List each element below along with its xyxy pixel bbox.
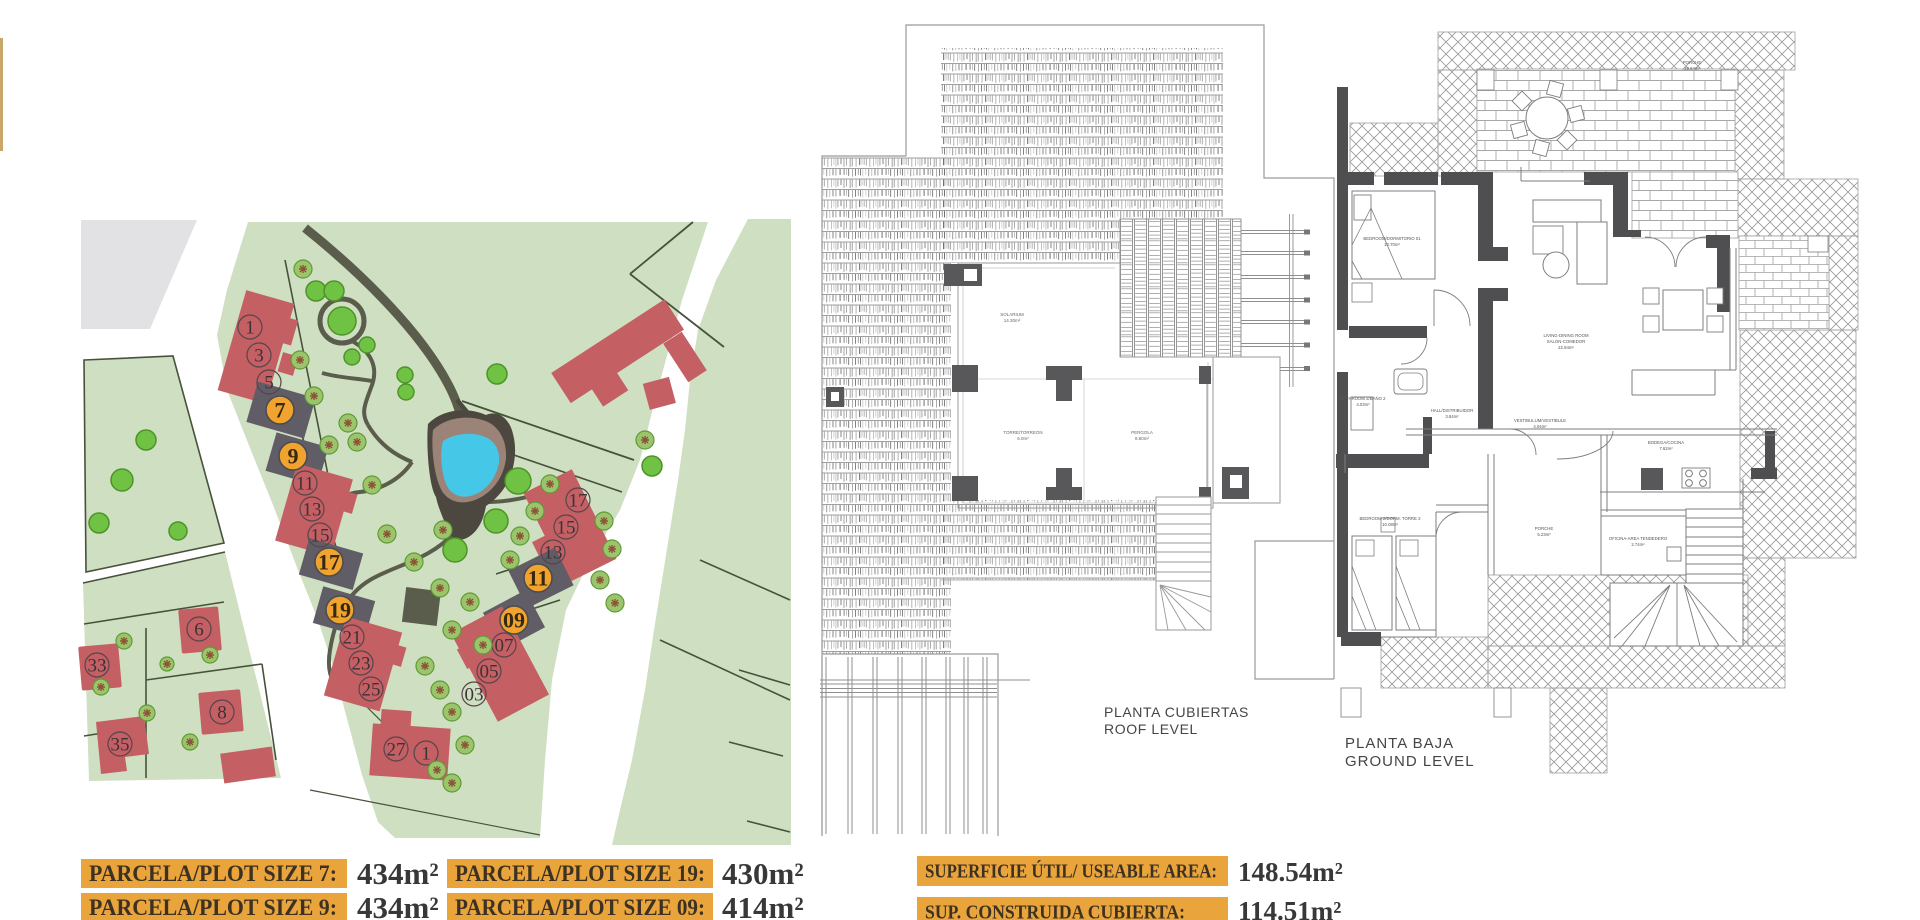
svg-text:07: 07 [495, 636, 514, 657]
svg-text:17: 17 [318, 550, 340, 575]
svg-text:11: 11 [296, 474, 314, 495]
svg-text:OFICINA-AREA TENDEDERO: OFICINA-AREA TENDEDERO [1609, 536, 1668, 541]
svg-text:3.84m²: 3.84m² [1445, 414, 1459, 419]
svg-text:27: 27 [387, 740, 406, 761]
svg-text:HALL/DISTRIBUIDOR: HALL/DISTRIBUIDOR [1431, 408, 1474, 413]
svg-text:VESTIBULUM/VESTIBULE: VESTIBULUM/VESTIBULE [1514, 418, 1566, 423]
svg-text:15: 15 [311, 526, 330, 547]
svg-text:15: 15 [557, 518, 576, 539]
svg-text:SALON-COMEDOR: SALON-COMEDOR [1547, 339, 1585, 344]
svg-text:11: 11 [528, 566, 549, 591]
svg-text:GROUND LEVEL: GROUND LEVEL [1345, 753, 1475, 770]
svg-text:SOLARIUM: SOLARIUM [1000, 312, 1024, 317]
svg-text:434m²: 434m² [357, 890, 439, 920]
svg-text:7: 7 [275, 398, 286, 423]
svg-text:TORRE/TORREON: TORRE/TORREON [1003, 430, 1042, 435]
svg-text:21: 21 [343, 628, 362, 649]
svg-text:3: 3 [254, 346, 264, 367]
svg-text:6.0m²: 6.0m² [1017, 436, 1029, 441]
svg-text:PARCELA/PLOT SIZE 9:: PARCELA/PLOT SIZE 9: [89, 895, 337, 920]
svg-text:13: 13 [544, 543, 563, 564]
svg-text:4.04m²: 4.04m² [1533, 424, 1547, 429]
svg-text:19.84m²: 19.84m² [1684, 66, 1700, 71]
svg-text:14.30m²: 14.30m² [1004, 318, 1021, 323]
svg-text:BODEGA/COCINA: BODEGA/COCINA [1648, 440, 1684, 445]
svg-text:PARCELA/PLOT SIZE 7:: PARCELA/PLOT SIZE 7: [89, 861, 337, 886]
svg-text:BEDROOM 2/DORM. TORRE 2: BEDROOM 2/DORM. TORRE 2 [1360, 516, 1422, 521]
svg-text:BATHROOM 2/BAÑO 2: BATHROOM 2/BAÑO 2 [1340, 396, 1386, 401]
svg-text:7.62m²: 7.62m² [1659, 446, 1673, 451]
svg-text:PERGOLA: PERGOLA [1131, 430, 1153, 435]
svg-text:8: 8 [217, 703, 227, 724]
svg-text:PARCELA/PLOT SIZE 19:: PARCELA/PLOT SIZE 19: [455, 861, 705, 886]
svg-text:10.08m²: 10.08m² [1382, 522, 1398, 527]
svg-text:33: 33 [88, 656, 107, 677]
svg-text:25: 25 [362, 680, 381, 701]
svg-text:114.51m²: 114.51m² [1238, 896, 1341, 920]
svg-text:PLANTA BAJA: PLANTA BAJA [1345, 735, 1454, 752]
svg-text:22.84m²: 22.84m² [1558, 345, 1574, 350]
svg-text:10.70m²: 10.70m² [1384, 242, 1400, 247]
svg-text:8.50m²: 8.50m² [1135, 436, 1150, 441]
svg-text:23: 23 [352, 654, 371, 675]
svg-text:148.54m²: 148.54m² [1238, 857, 1343, 887]
svg-text:17: 17 [569, 491, 588, 512]
svg-text:434m²: 434m² [357, 856, 439, 891]
svg-text:5: 5 [264, 373, 274, 394]
svg-text:13: 13 [303, 500, 322, 521]
svg-text:1: 1 [421, 744, 431, 765]
svg-text:PLANTA CUBIERTAS: PLANTA CUBIERTAS [1104, 704, 1249, 720]
svg-text:414m²: 414m² [722, 890, 804, 920]
svg-text:5.23m²: 5.23m² [1537, 532, 1551, 537]
svg-text:BEDROOM/DORMITORIO 01: BEDROOM/DORMITORIO 01 [1363, 236, 1421, 241]
svg-text:ROOF LEVEL: ROOF LEVEL [1104, 721, 1198, 737]
svg-text:PORCHE: PORCHE [1683, 60, 1702, 65]
svg-text:PARCELA/PLOT SIZE 09:: PARCELA/PLOT SIZE 09: [455, 895, 705, 920]
svg-text:35: 35 [111, 735, 130, 756]
svg-text:05: 05 [480, 662, 499, 683]
svg-text:1: 1 [245, 318, 255, 339]
svg-text:SUP. CONSTRUIDA CUBIERTA:: SUP. CONSTRUIDA CUBIERTA: [925, 902, 1185, 920]
svg-text:9: 9 [288, 444, 299, 469]
svg-text:LIVING-DINING ROOM: LIVING-DINING ROOM [1543, 333, 1589, 338]
svg-text:03: 03 [465, 685, 484, 706]
svg-text:6: 6 [194, 620, 204, 641]
svg-text:19: 19 [329, 598, 351, 623]
svg-text:SUPERFICIE ÚTIL/ USEABLE AREA:: SUPERFICIE ÚTIL/ USEABLE AREA: [925, 859, 1217, 883]
svg-text:09: 09 [503, 608, 525, 633]
svg-text:PORCHE: PORCHE [1535, 526, 1554, 531]
svg-text:4.03m²: 4.03m² [1356, 402, 1370, 407]
svg-text:2.74m²: 2.74m² [1631, 542, 1645, 547]
svg-text:430m²: 430m² [722, 856, 804, 891]
